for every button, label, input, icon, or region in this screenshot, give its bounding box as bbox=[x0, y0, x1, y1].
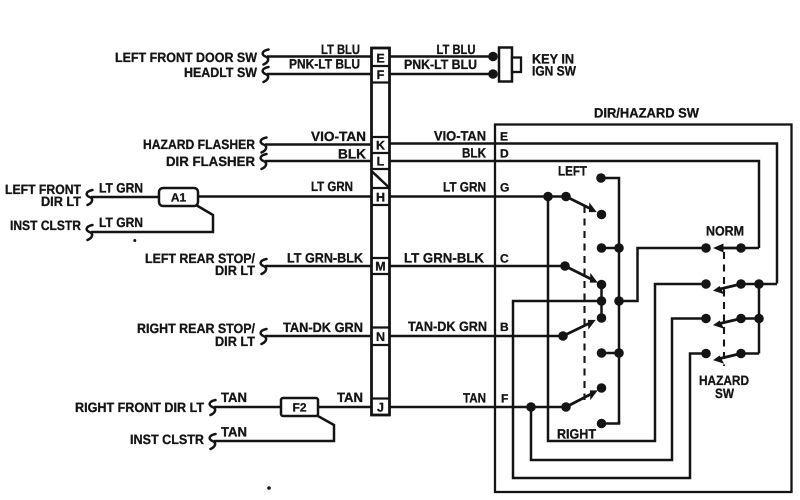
svg-text:TAN: TAN bbox=[337, 390, 363, 405]
svg-text:DIR LT: DIR LT bbox=[215, 334, 256, 349]
svg-text:TAN: TAN bbox=[221, 425, 247, 440]
svg-text:INST CLSTR: INST CLSTR bbox=[10, 218, 81, 233]
svg-text:E: E bbox=[500, 130, 508, 144]
svg-text:SW: SW bbox=[715, 386, 734, 401]
svg-text:IGN SW: IGN SW bbox=[532, 64, 576, 79]
svg-text:B: B bbox=[500, 320, 509, 334]
svg-text:DIR LT: DIR LT bbox=[41, 194, 82, 209]
svg-text:LEFT FRONT DOOR SW: LEFT FRONT DOOR SW bbox=[115, 50, 257, 65]
svg-text:LT GRN: LT GRN bbox=[99, 181, 143, 196]
svg-text:LT BLU: LT BLU bbox=[321, 42, 360, 57]
svg-text:L: L bbox=[377, 155, 385, 169]
svg-text:N: N bbox=[376, 330, 385, 344]
svg-text:J: J bbox=[377, 401, 384, 415]
svg-text:LT GRN-BLK: LT GRN-BLK bbox=[287, 251, 363, 266]
svg-text:M: M bbox=[375, 260, 385, 274]
svg-text:HAZARD FLASHER: HAZARD FLASHER bbox=[143, 137, 255, 152]
svg-text:F: F bbox=[377, 68, 385, 82]
svg-text:DIR LT: DIR LT bbox=[215, 263, 256, 278]
svg-text:RIGHT FRONT DIR LT: RIGHT FRONT DIR LT bbox=[75, 400, 205, 415]
svg-text:F: F bbox=[501, 392, 508, 406]
svg-text:RIGHT: RIGHT bbox=[557, 427, 597, 442]
svg-text:TAN: TAN bbox=[463, 391, 486, 406]
svg-text:LT GRN: LT GRN bbox=[311, 179, 353, 194]
svg-text:TAN-DK GRN: TAN-DK GRN bbox=[408, 319, 487, 334]
svg-text:TAN: TAN bbox=[221, 390, 247, 405]
svg-text:NORM: NORM bbox=[706, 224, 744, 239]
svg-text:LT GRN: LT GRN bbox=[99, 215, 143, 230]
svg-text:DIR/HAZARD SW: DIR/HAZARD SW bbox=[594, 106, 699, 121]
svg-text:H: H bbox=[376, 191, 385, 205]
svg-text:G: G bbox=[500, 181, 509, 195]
svg-text:E: E bbox=[376, 52, 384, 66]
svg-text:HEADLT SW: HEADLT SW bbox=[184, 65, 257, 80]
svg-text:D: D bbox=[500, 147, 509, 161]
svg-text:PNK-LT BLU: PNK-LT BLU bbox=[289, 57, 360, 72]
svg-text:VIO-TAN: VIO-TAN bbox=[434, 129, 486, 144]
svg-text:LT GRN: LT GRN bbox=[443, 180, 486, 195]
svg-text:LEFT: LEFT bbox=[558, 164, 588, 179]
svg-text:C: C bbox=[500, 252, 509, 266]
svg-text:A1: A1 bbox=[171, 191, 187, 205]
svg-text:BLK: BLK bbox=[462, 146, 486, 161]
svg-text:TAN-DK GRN: TAN-DK GRN bbox=[283, 320, 363, 335]
svg-text:K: K bbox=[376, 139, 385, 153]
svg-text:LT BLU: LT BLU bbox=[437, 42, 476, 57]
svg-text:INST CLSTR: INST CLSTR bbox=[130, 432, 204, 447]
svg-text:PNK-LT BLU: PNK-LT BLU bbox=[404, 57, 477, 72]
svg-text:BLK: BLK bbox=[338, 147, 366, 162]
svg-text:LT GRN-BLK: LT GRN-BLK bbox=[404, 251, 484, 266]
svg-text:DIR FLASHER: DIR FLASHER bbox=[166, 154, 255, 169]
svg-text:VIO-TAN: VIO-TAN bbox=[311, 129, 366, 144]
svg-text:F2: F2 bbox=[292, 401, 306, 415]
